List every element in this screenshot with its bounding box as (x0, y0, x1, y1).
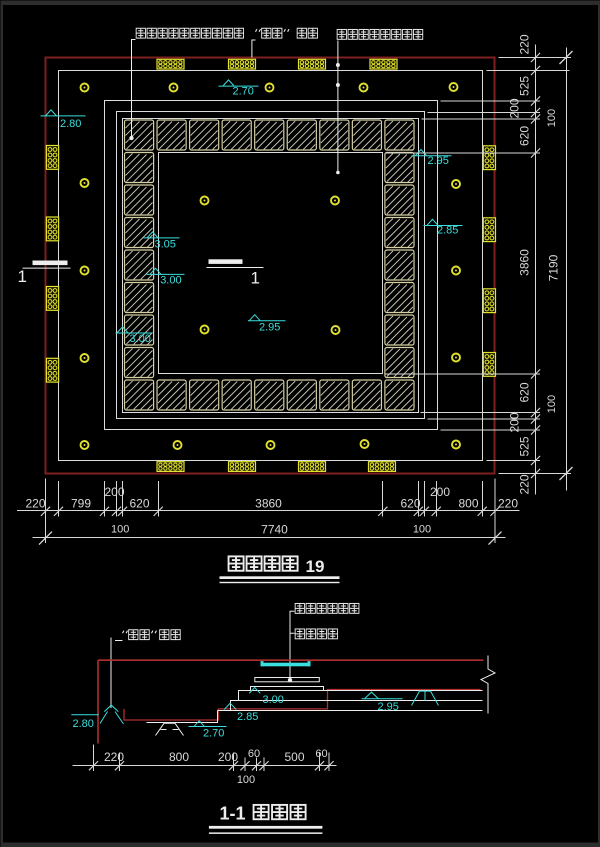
svg-text:200: 200 (430, 485, 450, 499)
svg-text:799: 799 (71, 497, 91, 511)
svg-text:620: 620 (518, 126, 532, 146)
svg-text:220: 220 (498, 497, 518, 511)
svg-text:200: 200 (508, 412, 522, 432)
svg-text:3.00: 3.00 (130, 333, 151, 345)
svg-text:100: 100 (413, 524, 431, 536)
svg-text:3.05: 3.05 (155, 239, 176, 251)
svg-text:220: 220 (25, 497, 45, 511)
svg-text:2.85: 2.85 (237, 711, 258, 723)
svg-text:620: 620 (518, 382, 532, 402)
svg-text:2.95: 2.95 (428, 155, 449, 167)
svg-text:2.95: 2.95 (378, 701, 399, 713)
svg-text:800: 800 (169, 750, 189, 764)
svg-text:525: 525 (518, 436, 532, 456)
svg-text:220: 220 (104, 750, 124, 764)
svg-text:200: 200 (508, 98, 522, 118)
svg-text:2.95: 2.95 (259, 321, 280, 333)
svg-text:60: 60 (248, 748, 260, 760)
svg-text:200: 200 (218, 750, 238, 764)
svg-text:100: 100 (237, 774, 255, 786)
svg-text:100: 100 (546, 395, 558, 413)
svg-text:220: 220 (518, 34, 532, 54)
svg-text:620: 620 (129, 497, 149, 511)
svg-text:2.80: 2.80 (73, 718, 94, 730)
svg-text:620: 620 (400, 497, 420, 511)
svg-text:100: 100 (546, 109, 558, 127)
svg-text:19: 19 (306, 557, 325, 576)
svg-text:60: 60 (315, 748, 327, 760)
svg-text:3860: 3860 (255, 497, 282, 511)
svg-text:3.00: 3.00 (160, 275, 181, 287)
svg-text:800: 800 (458, 497, 478, 511)
svg-text:2.85: 2.85 (437, 225, 458, 237)
svg-text:1: 1 (251, 269, 260, 288)
svg-text:3.00: 3.00 (263, 694, 284, 706)
svg-text:100: 100 (111, 524, 129, 536)
svg-text:1: 1 (18, 267, 27, 286)
svg-text:7190: 7190 (547, 254, 561, 281)
svg-text:2.70: 2.70 (203, 728, 224, 740)
svg-text:2.80: 2.80 (60, 118, 81, 130)
svg-text:500: 500 (284, 750, 304, 764)
svg-text:200: 200 (104, 485, 124, 499)
svg-text:220: 220 (518, 474, 532, 494)
svg-text:3860: 3860 (518, 249, 532, 276)
svg-text:525: 525 (518, 76, 532, 96)
svg-text:1-1: 1-1 (220, 804, 246, 824)
svg-text:7740: 7740 (261, 523, 288, 537)
svg-text:2.70: 2.70 (233, 86, 254, 98)
